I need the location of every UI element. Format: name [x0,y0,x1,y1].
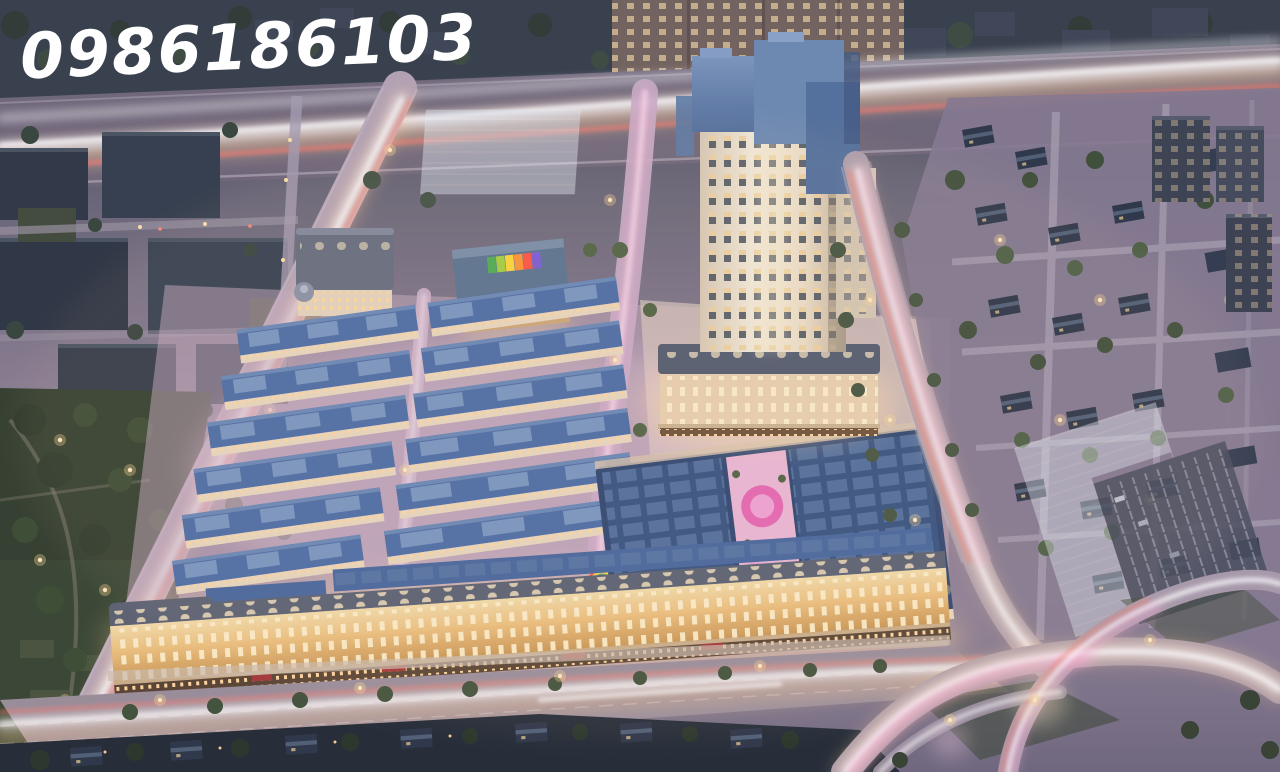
aerial-render-photo: 0986186103 [0,0,1280,772]
atmosphere-overlay [0,0,1280,772]
rendered-scene [0,0,1280,772]
